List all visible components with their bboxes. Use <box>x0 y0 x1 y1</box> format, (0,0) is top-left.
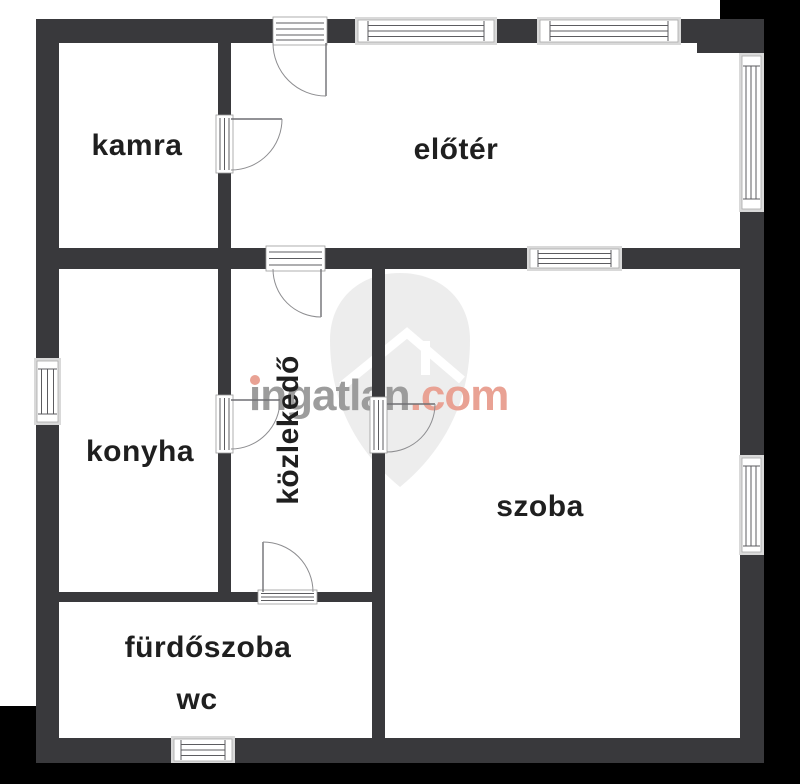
door <box>216 395 280 453</box>
window <box>527 246 622 271</box>
room-label-eloter: előtér <box>414 133 499 167</box>
wall-segment <box>218 453 231 592</box>
wall-segment <box>372 269 385 397</box>
floorplan-drawing <box>0 0 800 784</box>
window <box>34 358 61 425</box>
room-label-kamra: kamra <box>92 129 183 163</box>
outside-bottom-strip <box>0 763 800 784</box>
wall-segment <box>740 19 764 53</box>
door <box>216 115 282 173</box>
doors <box>216 17 435 604</box>
door <box>258 542 317 604</box>
wall-segment <box>218 173 231 248</box>
wall-segment <box>218 43 231 115</box>
room-label-kozlekedo: közlekedő <box>272 355 306 505</box>
door <box>370 397 435 453</box>
window <box>171 736 235 764</box>
outside-right-strip <box>764 0 800 784</box>
room-label-konyha: konyha <box>86 435 194 469</box>
door <box>266 246 325 317</box>
wall-segment <box>233 738 764 763</box>
window <box>537 17 681 45</box>
wall-segment <box>325 248 527 269</box>
window <box>739 455 764 555</box>
wall-segment <box>327 19 355 43</box>
wall-segment <box>40 592 258 602</box>
outside-background <box>0 0 800 784</box>
room-label-szoba: szoba <box>496 490 584 524</box>
window <box>739 53 764 212</box>
wall-segment <box>740 212 764 455</box>
wall-segment <box>36 248 268 269</box>
wall-segment <box>36 19 59 360</box>
room-label-furdoszoba: fürdőszoba <box>125 631 292 665</box>
window <box>355 17 497 45</box>
wall-segment <box>317 592 385 602</box>
wall-segment <box>497 19 537 43</box>
wall-segment <box>218 269 231 395</box>
wall-segment <box>622 248 740 269</box>
door <box>273 17 327 96</box>
wall-segment <box>740 555 764 763</box>
floorplan-image: ingatlan.com <box>0 0 800 784</box>
room-label-wc: wc <box>176 683 217 717</box>
outside-topright-strip <box>720 0 800 19</box>
wall-segment <box>36 19 273 43</box>
outside-bottomleft-notch <box>0 706 36 784</box>
